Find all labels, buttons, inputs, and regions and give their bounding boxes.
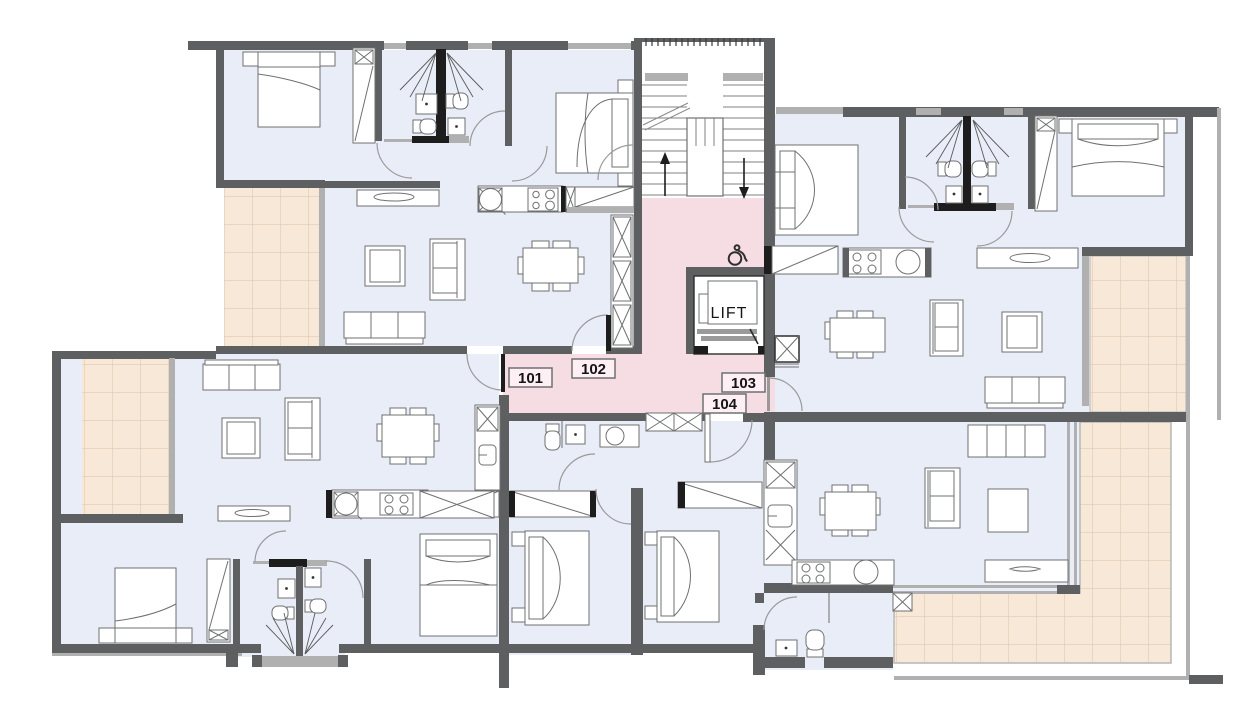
svg-text:101: 101 (518, 370, 543, 387)
svg-text:104: 104 (712, 396, 738, 413)
svg-text:103: 103 (731, 375, 756, 392)
svg-text:102: 102 (581, 361, 606, 378)
svg-text:LIFT: LIFT (711, 305, 748, 322)
